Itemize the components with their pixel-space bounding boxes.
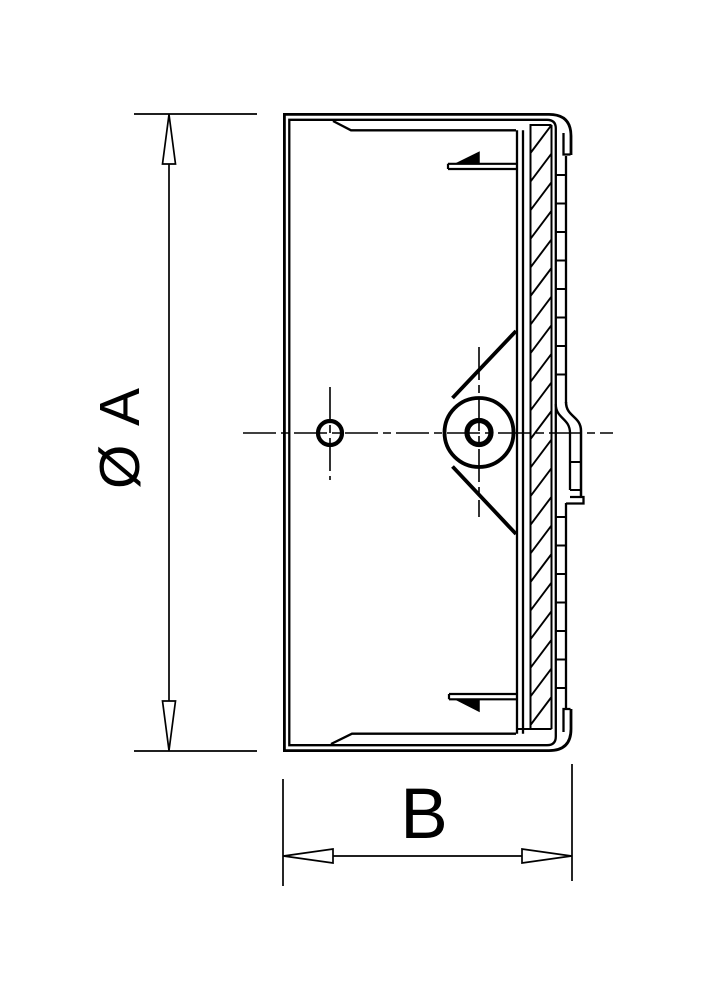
gusset-upper-edge [453,331,517,398]
top-lip [564,133,571,155]
drawing-line [531,525,552,553]
upper-clip-barb [456,153,479,164]
drawing-line [531,611,552,639]
serration-rungs [556,175,566,688]
cap-cross-section-drawing: Ø A B [0,0,715,1000]
gusset-lower-edge [453,467,517,535]
drawing-line [531,354,552,382]
drawing-line [531,497,552,525]
diameter-label: Ø A [88,385,152,489]
drawing-line [531,182,552,210]
drawing-line [531,297,552,325]
drawing-line [531,211,552,239]
drawing-line [531,268,552,296]
drawing-line [531,325,552,353]
section-hatching [531,125,552,725]
drawing-line [531,411,552,439]
center-lines [243,347,613,517]
latch-tab-foot [566,497,584,504]
drawing-line [531,640,552,668]
latch-tab [556,402,584,504]
drawing-line [531,440,552,468]
lower-clip-bar [449,694,516,699]
dimension-diameter-A [134,114,257,751]
lower-clip [449,694,516,711]
drawing-line [531,468,552,496]
latch-tab-inner [556,404,570,490]
bottom-ledge-chamfer [331,734,516,744]
drawing-canvas: Ø A B [0,0,715,1000]
drawing-line [531,382,552,410]
bottom-lip [564,709,571,732]
dimA-arrow-up-icon [163,115,176,165]
dimB-arrow-right-icon [522,849,572,863]
latch-tab-outer [566,402,581,497]
drawing-line [531,583,552,611]
drawing-line [531,125,552,153]
width-label: B [400,775,447,854]
drawing-line [531,154,552,182]
dimB-arrow-left-icon [284,849,334,863]
drawing-line [531,554,552,582]
upper-clip [448,153,516,170]
drawing-line [531,239,552,267]
lower-clip-barb [456,699,479,711]
drawing-line [531,697,552,725]
top-ledge-chamfer [333,121,516,130]
drawing-line [531,668,552,696]
upper-clip-bar [448,164,516,169]
dimA-arrow-down-icon [163,701,176,751]
